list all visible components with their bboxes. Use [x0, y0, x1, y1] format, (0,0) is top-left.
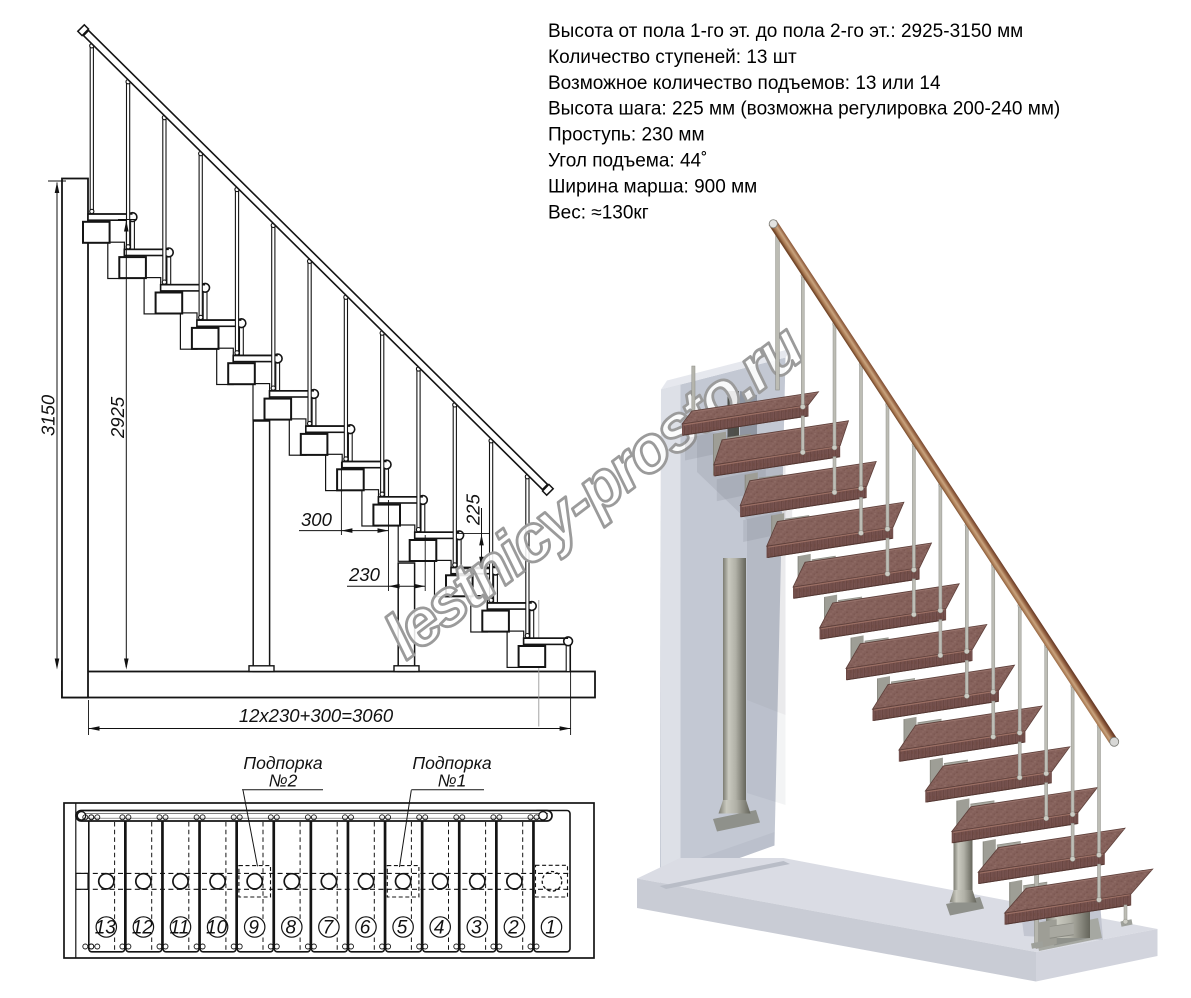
svg-text:3: 3 [471, 918, 482, 939]
svg-text:Проступь: 230 мм: Проступь: 230 мм [548, 125, 705, 146]
svg-text:5: 5 [397, 918, 408, 939]
svg-text:Угол подъема: 44˚: Угол подъема: 44˚ [548, 151, 707, 172]
svg-text:Вес: ≈130кг: Вес: ≈130кг [548, 202, 649, 223]
svg-text:2: 2 [507, 918, 519, 939]
svg-text:1: 1 [545, 918, 556, 939]
svg-text:3150: 3150 [38, 394, 59, 436]
svg-text:Количество ступеней: 13 шт: Количество ступеней: 13 шт [548, 47, 797, 68]
svg-text:225: 225 [463, 493, 484, 526]
svg-text:9: 9 [248, 918, 259, 939]
svg-text:8: 8 [286, 918, 297, 939]
svg-text:300: 300 [301, 509, 333, 530]
svg-text:12x230+300=3060: 12x230+300=3060 [239, 705, 394, 726]
svg-text:№1: №1 [438, 771, 467, 791]
svg-text:Возможное количество подъемов:: Возможное количество подъемов: 13 или 14 [548, 73, 941, 94]
svg-text:230: 230 [348, 564, 381, 585]
svg-text:12: 12 [132, 918, 154, 939]
svg-text:10: 10 [206, 918, 228, 939]
svg-text:Ширина марша: 900 мм: Ширина марша: 900 мм [548, 176, 757, 197]
svg-text:Высота шага: 225 мм (возможна: Высота шага: 225 мм (возможна регулировк… [548, 99, 1060, 120]
svg-text:Высота от пола 1-го эт. до пол: Высота от пола 1-го эт. до пола 2-го эт.… [548, 21, 1023, 42]
svg-text:13: 13 [95, 918, 117, 939]
svg-text:№2: №2 [269, 771, 298, 791]
svg-text:4: 4 [434, 918, 445, 939]
svg-text:7: 7 [323, 918, 335, 939]
svg-text:11: 11 [170, 918, 190, 939]
svg-text:6: 6 [360, 918, 371, 939]
svg-text:2925: 2925 [107, 396, 128, 439]
